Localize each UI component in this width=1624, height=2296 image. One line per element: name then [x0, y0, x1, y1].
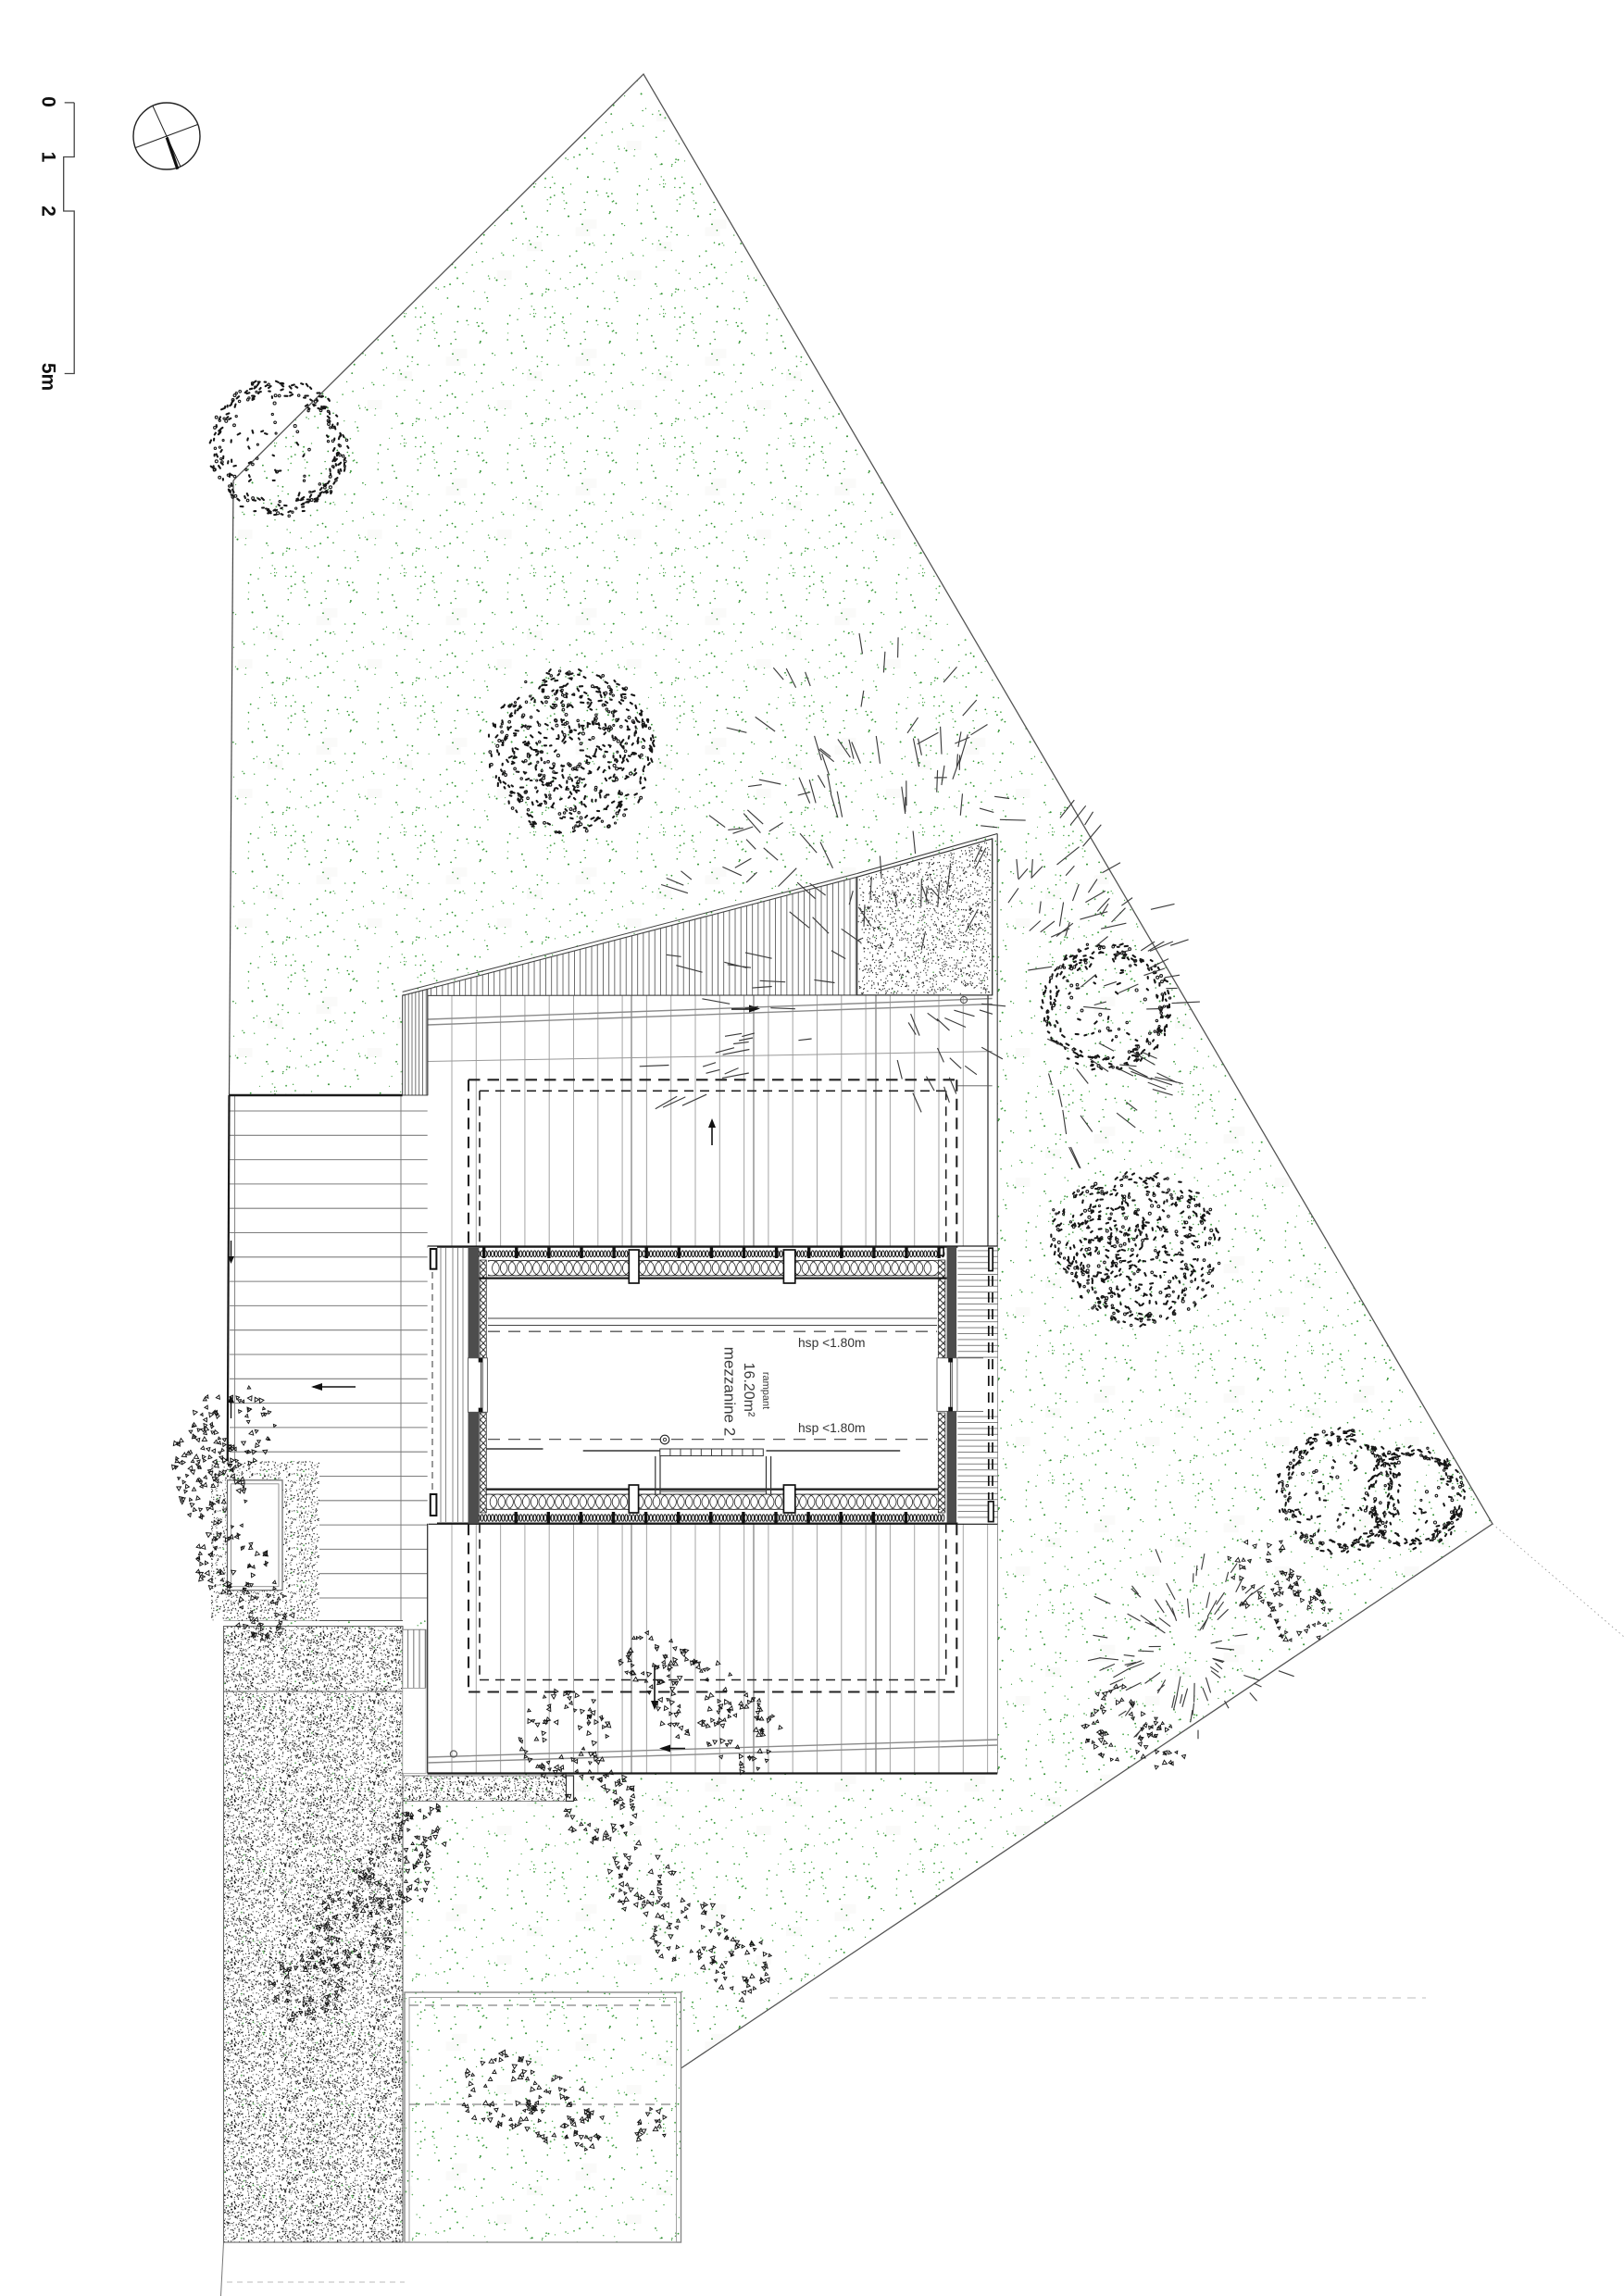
svg-text:2: 2	[38, 206, 59, 217]
svg-text:0: 0	[38, 96, 59, 107]
svg-text:mezzanine 2: mezzanine 2	[721, 1347, 739, 1436]
svg-text:hsp <1.80m: hsp <1.80m	[798, 1336, 865, 1350]
svg-text:rampant: rampant	[760, 1372, 771, 1409]
svg-text:5m: 5m	[38, 363, 59, 391]
svg-text:16.20m²: 16.20m²	[741, 1363, 756, 1417]
svg-text:hsp <1.80m: hsp <1.80m	[798, 1421, 865, 1435]
svg-text:1: 1	[38, 152, 59, 163]
